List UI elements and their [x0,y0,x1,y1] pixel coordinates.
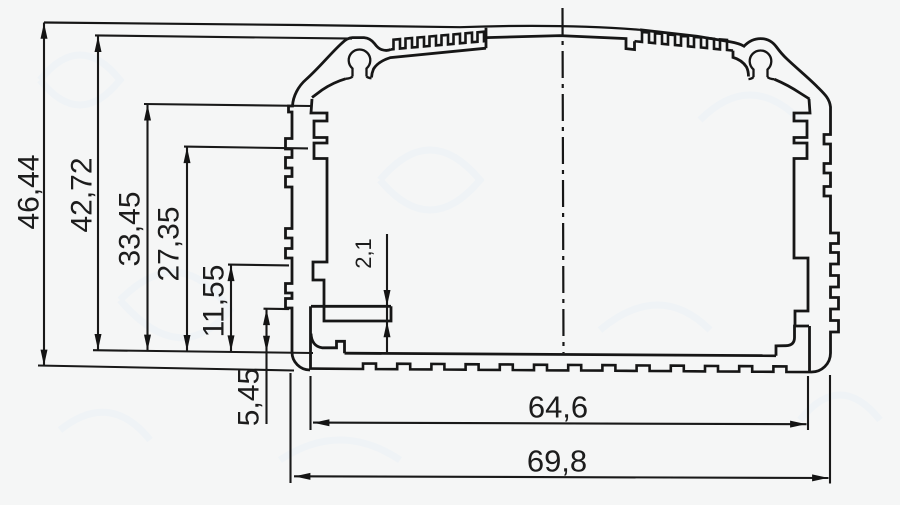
svg-text:2,1: 2,1 [351,238,376,269]
svg-text:11,55: 11,55 [198,265,231,338]
svg-text:27,35: 27,35 [153,206,186,281]
svg-text:46,44: 46,44 [13,154,46,229]
svg-text:5,45: 5,45 [233,368,266,426]
svg-text:42,72: 42,72 [66,157,99,232]
svg-text:69,8: 69,8 [527,444,587,479]
svg-text:33,45: 33,45 [114,191,147,266]
svg-text:64,6: 64,6 [528,390,588,425]
